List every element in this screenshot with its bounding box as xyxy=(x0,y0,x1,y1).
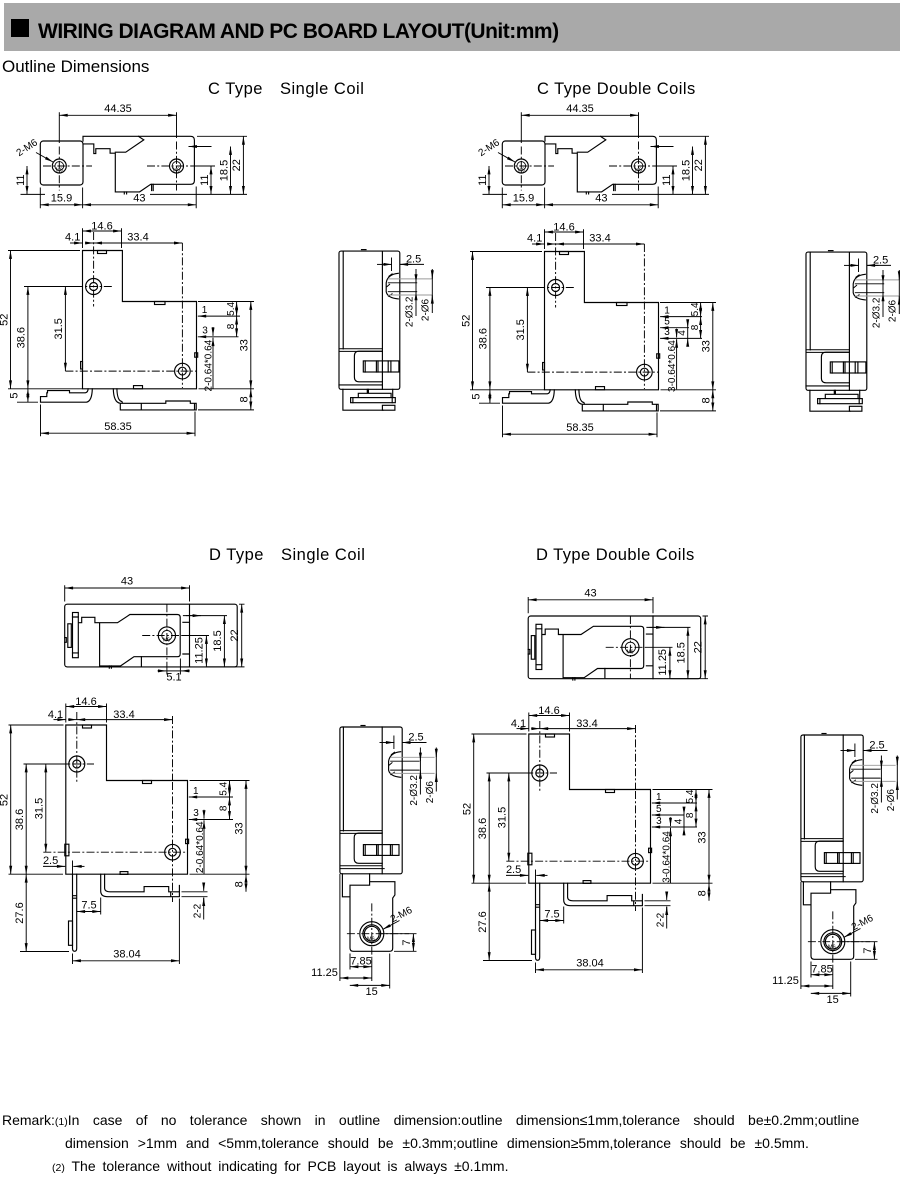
svg-text:3: 3 xyxy=(664,327,670,338)
svg-text:3: 3 xyxy=(202,325,208,336)
svg-text:5.1: 5.1 xyxy=(166,671,181,683)
svg-text:5.4: 5.4 xyxy=(219,781,230,795)
svg-text:1: 1 xyxy=(656,792,662,803)
svg-text:3-0.64*0.64: 3-0.64*0.64 xyxy=(667,340,678,392)
svg-text:1: 1 xyxy=(664,305,670,316)
svg-text:3: 3 xyxy=(193,808,199,819)
svg-text:5.4: 5.4 xyxy=(226,302,237,316)
svg-text:5.4: 5.4 xyxy=(690,302,701,316)
svg-text:5: 5 xyxy=(664,316,670,327)
svg-text:1: 1 xyxy=(193,786,199,797)
svg-text:3-0.64*0.64: 3-0.64*0.64 xyxy=(661,831,672,883)
svg-text:3: 3 xyxy=(656,816,662,827)
svg-text:8: 8 xyxy=(690,324,701,330)
svg-text:2-0.64*0.64: 2-0.64*0.64 xyxy=(195,821,206,873)
svg-text:2-0.64*0.64: 2-0.64*0.64 xyxy=(204,339,215,391)
svg-text:8: 8 xyxy=(219,805,230,811)
svg-text:4: 4 xyxy=(674,818,685,824)
svg-text:5: 5 xyxy=(656,804,662,815)
svg-text:5.4: 5.4 xyxy=(685,789,696,803)
svg-text:4: 4 xyxy=(677,330,688,336)
svg-text:8: 8 xyxy=(685,812,696,818)
svg-text:8: 8 xyxy=(226,323,237,329)
svg-text:1: 1 xyxy=(202,305,208,316)
